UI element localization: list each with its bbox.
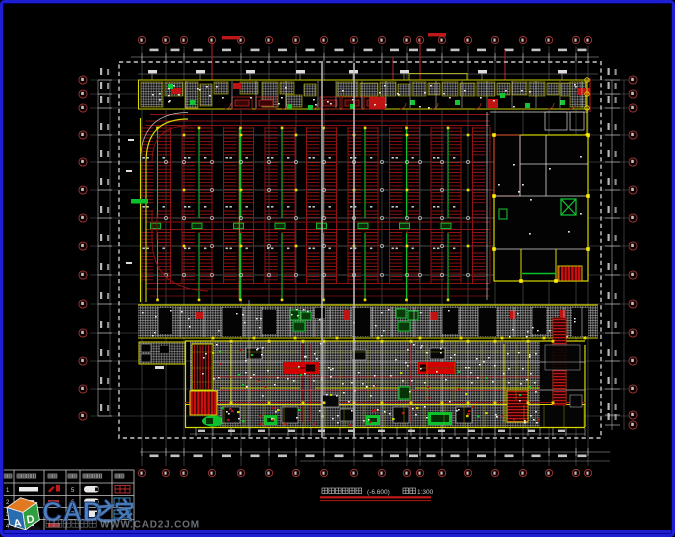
svg-text:CAD: CAD bbox=[42, 496, 103, 527]
svg-text:(-6.600): (-6.600) bbox=[367, 489, 390, 496]
svg-text:WWW.CAD2J.COM: WWW.CAD2J.COM bbox=[100, 520, 200, 531]
svg-text:1:300: 1:300 bbox=[417, 489, 434, 496]
